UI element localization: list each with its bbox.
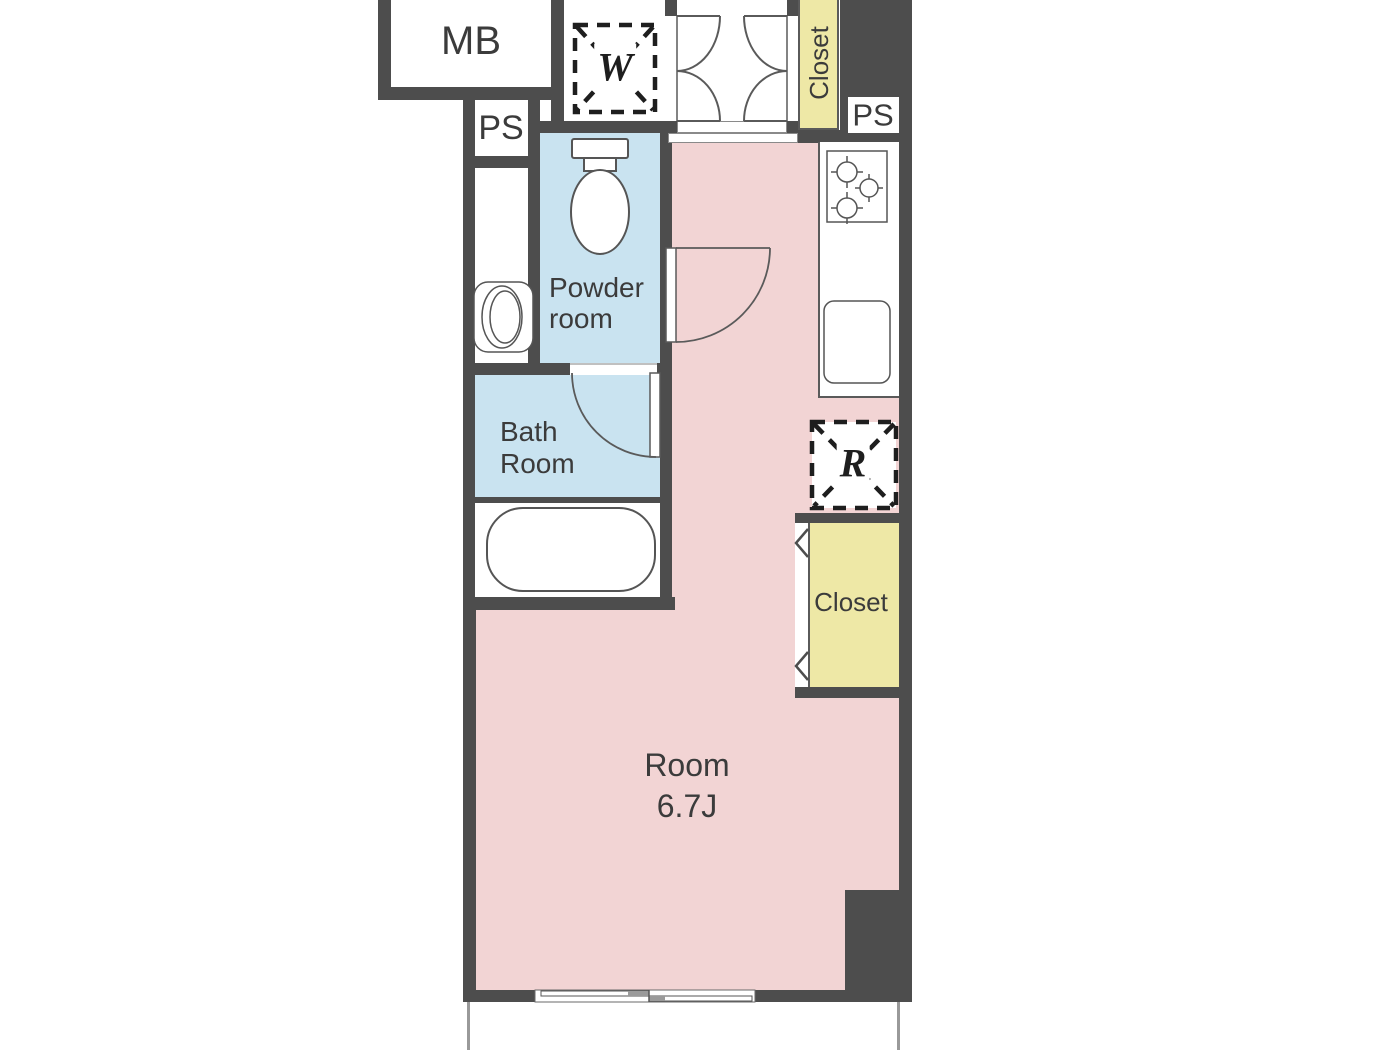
wall bbox=[551, 0, 564, 133]
kitchen-counter bbox=[818, 142, 899, 398]
bathtub-space bbox=[475, 503, 660, 597]
wall bbox=[528, 121, 672, 133]
entrance-space bbox=[677, 0, 787, 121]
wall bbox=[665, 0, 677, 16]
entrance-step bbox=[668, 133, 798, 143]
powder-room-label: Powder room bbox=[549, 272, 644, 334]
floor-plan: MB PS PS Closet Closet Powder room Bath … bbox=[0, 0, 1400, 1050]
wall-pillar bbox=[845, 890, 912, 1002]
wall bbox=[657, 363, 672, 375]
wall bbox=[899, 0, 912, 1002]
wall bbox=[463, 363, 570, 375]
main-room-label: Room 6.7J bbox=[607, 745, 767, 827]
door-jamb bbox=[665, 16, 677, 121]
vanity-space bbox=[475, 168, 528, 363]
pipe-shaft-right-label: PS bbox=[852, 100, 893, 131]
meter-box-label: MB bbox=[441, 21, 501, 61]
entrance-step bbox=[677, 121, 787, 133]
closet-top-label: Closet bbox=[806, 26, 832, 100]
refrigerator-letter: R bbox=[837, 440, 870, 487]
wall bbox=[463, 156, 540, 168]
wall bbox=[463, 597, 675, 610]
balcony-edge-lines bbox=[467, 1002, 900, 1050]
closet-main-label: Closet bbox=[814, 589, 888, 615]
pipe-shaft-left-label: PS bbox=[478, 111, 523, 145]
bath-room-label: Bath Room bbox=[500, 416, 575, 480]
wall bbox=[378, 0, 391, 100]
door-jamb bbox=[787, 16, 798, 121]
closet-door-strip bbox=[795, 523, 808, 687]
washing-machine-letter: W bbox=[594, 44, 636, 91]
main-room-name: Room bbox=[607, 745, 767, 786]
wall bbox=[795, 687, 900, 698]
wall bbox=[463, 990, 912, 1002]
wall bbox=[665, 121, 677, 133]
wall bbox=[795, 513, 900, 523]
main-room-size: 6.7J bbox=[607, 786, 767, 827]
